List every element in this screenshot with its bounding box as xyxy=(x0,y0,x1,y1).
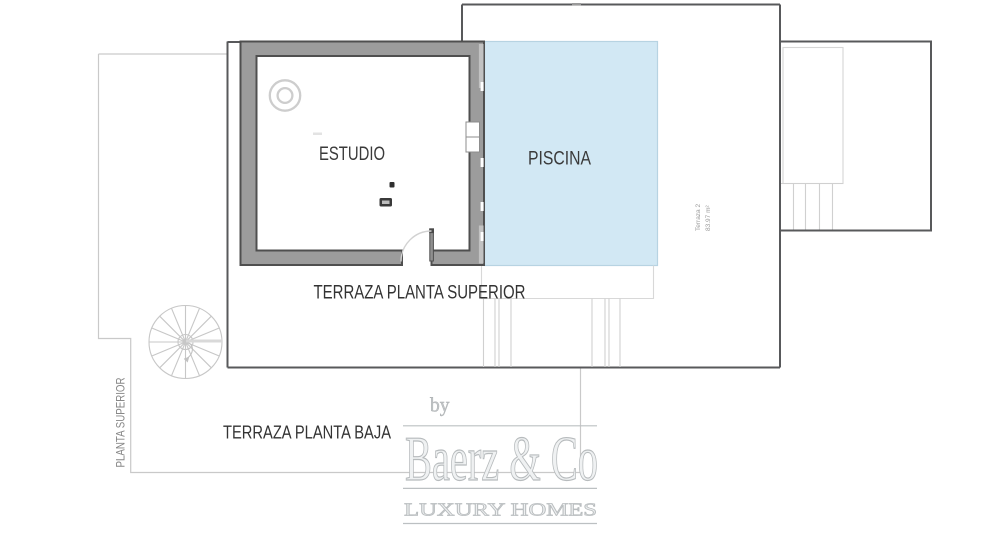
svg-text:by: by xyxy=(430,396,450,417)
svg-text:PLANTA SUPERIOR: PLANTA SUPERIOR xyxy=(114,377,128,467)
svg-text:TERRAZA PLANTA SUPERIOR: TERRAZA PLANTA SUPERIOR xyxy=(314,283,526,304)
svg-text:Baerz & Co: Baerz & Co xyxy=(405,423,598,494)
svg-text:83.97 m²: 83.97 m² xyxy=(705,205,712,231)
svg-text:ESTUDIO: ESTUDIO xyxy=(319,144,385,165)
svg-text:Terraza 2: Terraza 2 xyxy=(695,204,702,231)
svg-text:TERRAZA PLANTA BAJA: TERRAZA PLANTA BAJA xyxy=(223,423,391,443)
svg-text:PISCINA: PISCINA xyxy=(528,149,591,170)
svg-text:LUXURY HOMES: LUXURY HOMES xyxy=(404,500,597,520)
